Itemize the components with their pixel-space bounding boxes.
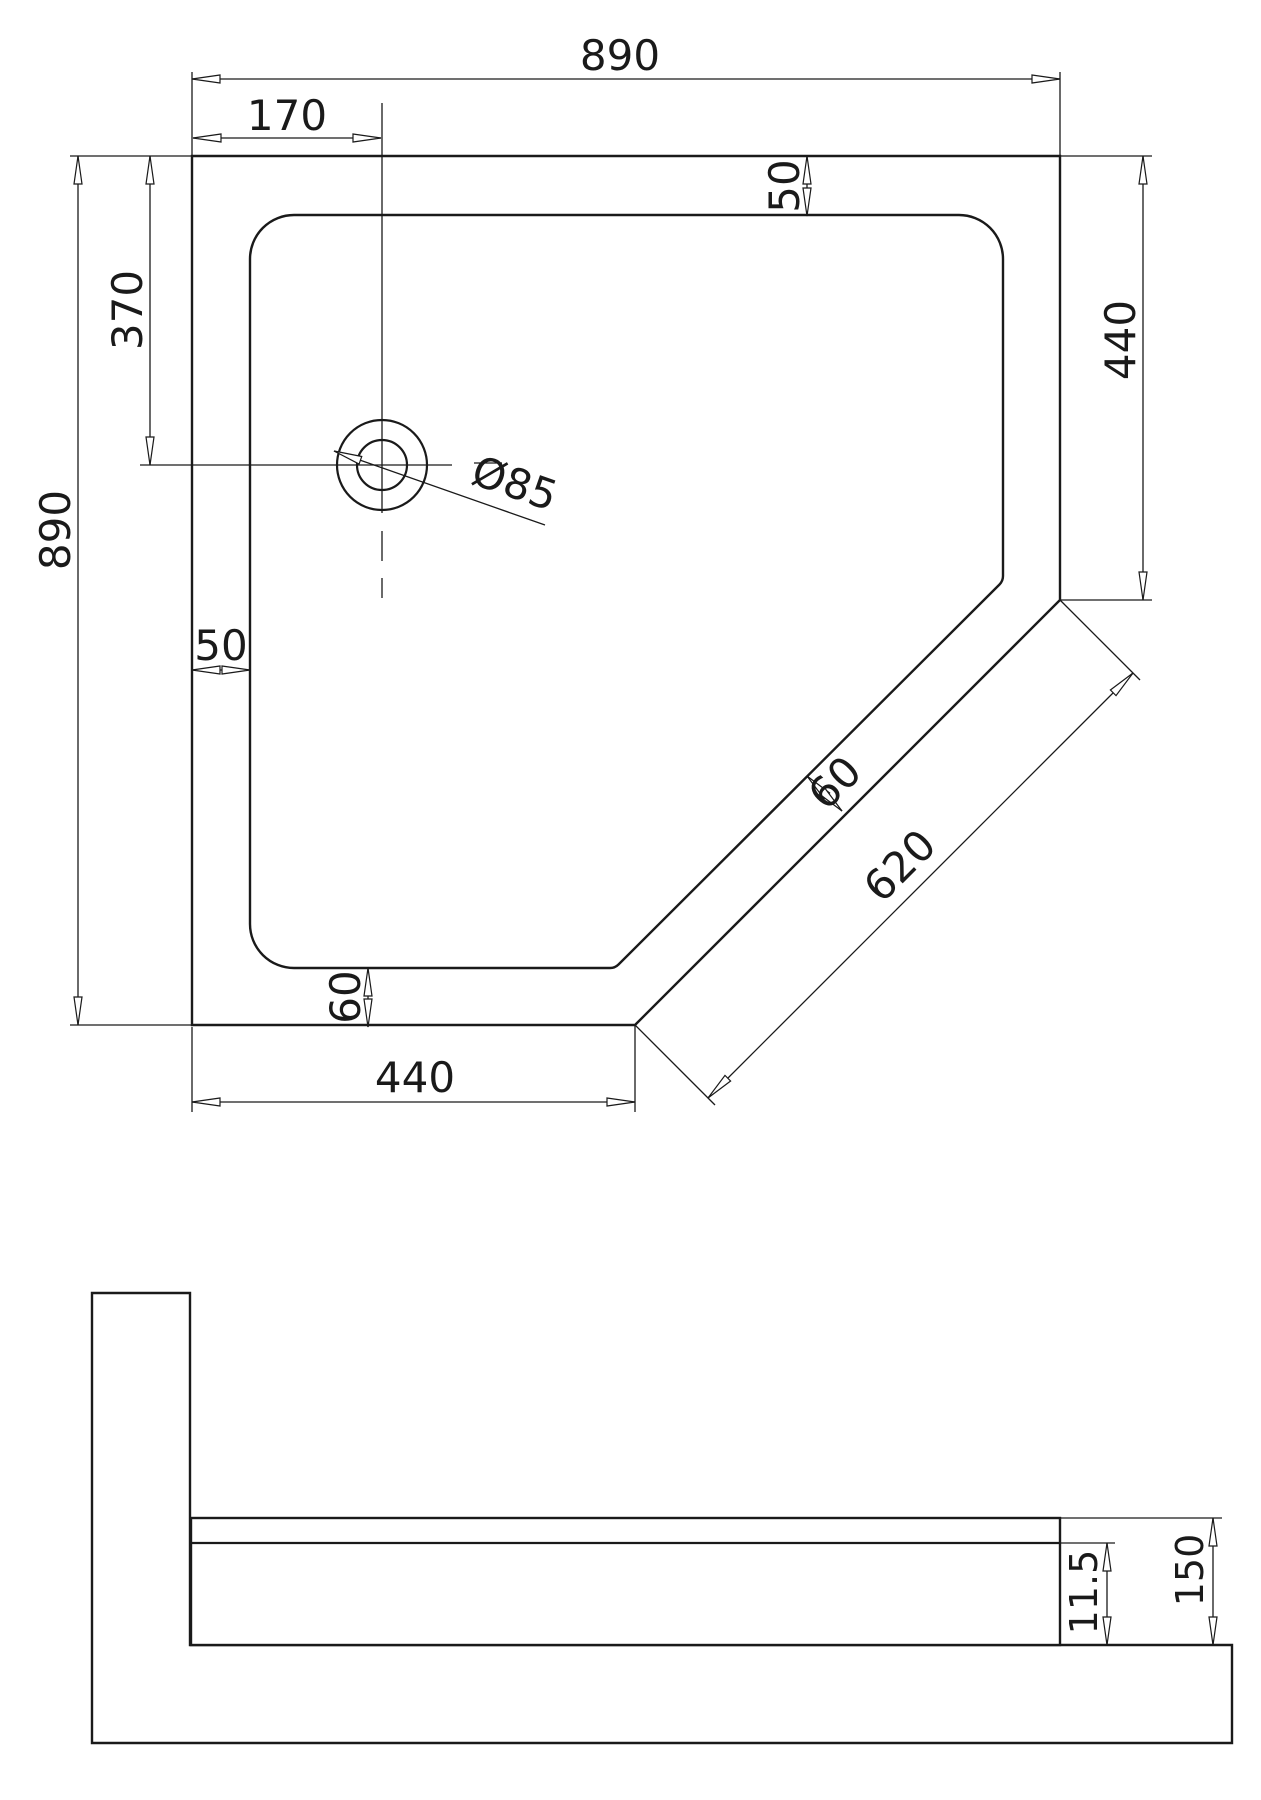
- dim-shelf-depth: 11.5: [1062, 1550, 1106, 1635]
- dim-bottom-side-length: 440: [375, 1053, 455, 1102]
- dim-drain-from-top: 370: [103, 270, 152, 350]
- dim-line-diagonal-length: [708, 673, 1133, 1098]
- dim-diagonal-length: 620: [854, 820, 945, 911]
- dim-rim-bottom: 60: [321, 970, 370, 1023]
- technical-drawing-page: 890 170 890 370 50 440 50 Ø85 60 620 60 …: [0, 0, 1261, 1800]
- dim-overall-width-top: 890: [580, 31, 660, 80]
- tray-section-body: [191, 1518, 1060, 1645]
- dimension-lines: [78, 79, 1143, 1102]
- dim-right-side-length: 440: [1096, 300, 1145, 380]
- dim-total-height: 150: [1168, 1534, 1212, 1607]
- tray-outer-outline: [192, 156, 1060, 1025]
- dim-rim-left: 50: [194, 621, 247, 670]
- shower-tray-drawing: 890 170 890 370 50 440 50 Ø85 60 620 60 …: [0, 0, 1261, 1800]
- plan-view: 890 170 890 370 50 440 50 Ø85 60 620 60 …: [31, 31, 1152, 1112]
- section-view: 11.5 150: [92, 1293, 1232, 1743]
- drain: [140, 103, 452, 598]
- dim-drain-from-left: 170: [247, 91, 327, 140]
- dim-overall-height-left: 890: [31, 490, 80, 570]
- dim-drain-diameter: Ø85: [466, 446, 564, 521]
- dim-rim-top-right: 50: [760, 159, 809, 212]
- dim-rim-diagonal: 60: [799, 747, 871, 819]
